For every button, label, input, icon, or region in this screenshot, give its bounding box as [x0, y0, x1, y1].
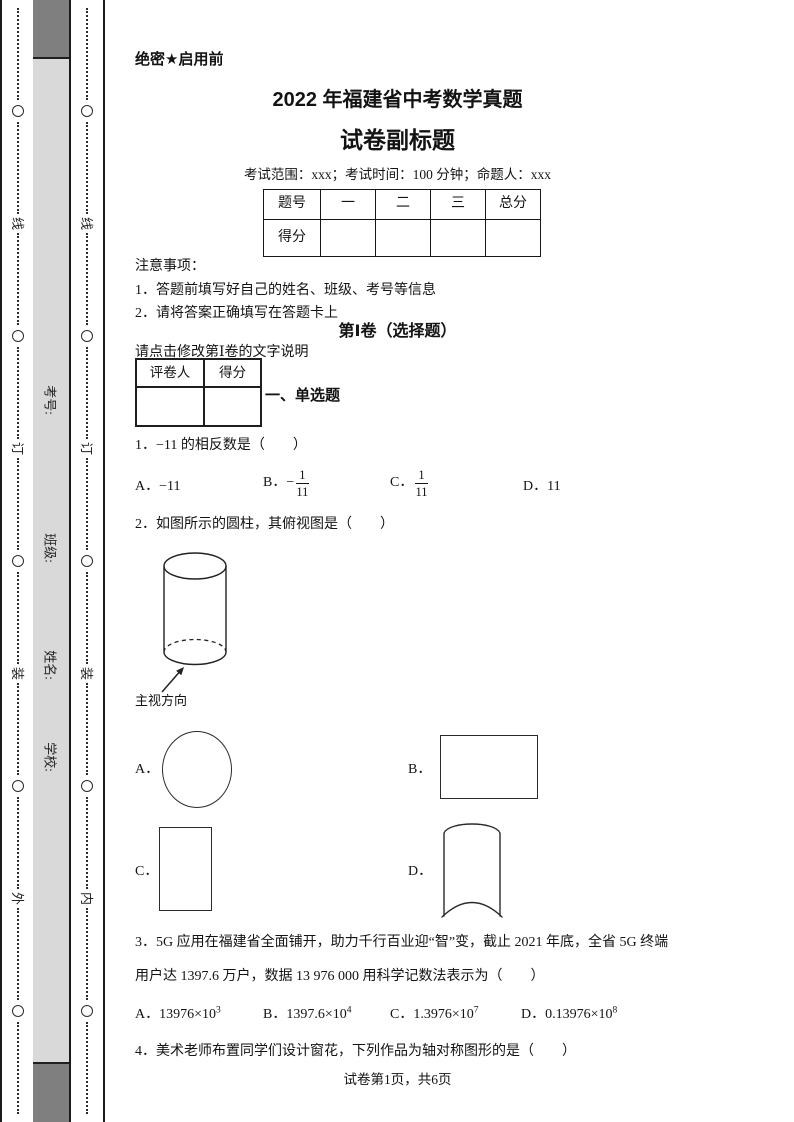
dotted-line-segment [86, 572, 88, 664]
q1-option-b: B．−111 [263, 468, 311, 500]
dotted-line-segment [17, 233, 19, 325]
punch-hole-circle-icon [81, 780, 93, 792]
fraction: 111 [415, 468, 427, 500]
dotted-line-segment [86, 908, 88, 1000]
dotted-line-segment [86, 458, 88, 550]
score-row-label: 得分 [264, 220, 321, 257]
score-table-header: 三 [431, 190, 486, 220]
dotted-line-segment [17, 347, 19, 439]
punch-hole-circle-icon [12, 555, 24, 567]
punch-hole-circle-icon [12, 330, 24, 342]
strip-bottom-cap [33, 1062, 69, 1122]
exponent: 4 [347, 1005, 352, 1015]
exam-paper-page: { "page": { "secret_label": "绝密★启用前", "t… [0, 0, 794, 1122]
binding-line-outer-column: 线 订 装 外 [0, 0, 33, 1122]
grader-empty-cell [204, 387, 261, 426]
binding-char: 装 [11, 667, 24, 680]
q2-option-c-label: C． [135, 863, 158, 882]
exam-number-field-label: 考号: [42, 385, 61, 415]
punch-hole-circle-icon [12, 1005, 24, 1017]
q2-option-b-rectangle-figure [440, 735, 538, 799]
subsection-heading: 一、单选题 [265, 386, 340, 406]
binding-char: 订 [11, 442, 24, 455]
dotted-line-segment [86, 347, 88, 439]
score-empty-cell [431, 220, 486, 257]
q2-option-c-rectangle-figure [159, 827, 212, 911]
dotted-line-segment [17, 458, 19, 550]
score-summary-table: 题号 一 二 三 总分 得分 [263, 189, 541, 257]
score-empty-cell [321, 220, 376, 257]
q1-option-d: D．11 [523, 478, 561, 497]
binding-char: 外 [11, 892, 24, 905]
question-3-stem-line1: 3．5G 应用在福建省全面铺开，助力千行百业迎“智”变，截止 2021 年底，全… [135, 934, 668, 953]
student-info-strip: 考号: 班级: 姓名: 学校: [33, 0, 71, 1122]
dotted-line-segment [17, 797, 19, 889]
punch-hole-circle-icon [81, 330, 93, 342]
binding-char: 订 [80, 442, 93, 455]
page-footer: 试卷第1页，共6页 [135, 1071, 660, 1089]
secret-label: 绝密★启用前 [135, 50, 223, 70]
dotted-line-segment [17, 122, 19, 214]
q2-option-d-label: D． [408, 863, 432, 882]
binding-line-inner-column: 线 订 装 内 [71, 0, 105, 1122]
figure-label: 主视方向 [135, 692, 187, 710]
exponent: 7 [474, 1005, 479, 1015]
dotted-line-segment [86, 8, 88, 100]
q2-option-a-circle-figure [162, 731, 232, 808]
q3-option-b: B．1397.6×104 [263, 1006, 352, 1025]
q2-option-b-label: B． [408, 761, 431, 780]
binding-margin: 线 订 装 外 考号: 班级: 姓名: 学校: 线 订 装 [0, 0, 107, 1122]
name-field-label: 姓名: [42, 650, 61, 680]
question-1-stem: 1．−11 的相反数是（ ） [135, 437, 307, 456]
class-field-label: 班级: [42, 533, 61, 563]
binding-char: 装 [80, 667, 93, 680]
exponent: 3 [216, 1005, 221, 1015]
q2-option-a-label: A． [135, 761, 159, 780]
q1-option-a: A．−11 [135, 478, 181, 497]
section1-heading: 第Ⅰ卷（选择题） [135, 321, 660, 343]
dotted-line-segment [86, 122, 88, 214]
punch-hole-circle-icon [81, 1005, 93, 1017]
grader-score-table: 评卷人 得分 [135, 358, 262, 427]
notes-item-1: 1．答题前填写好自己的姓名、班级、考号等信息 [135, 282, 436, 301]
question-2-stem: 2．如图所示的圆柱，其俯视图是（ ） [135, 516, 394, 535]
binding-char: 线 [80, 217, 93, 230]
question-4-stem: 4．美术老师布置同学们设计窗花，下列作品为轴对称图形的是（ ） [135, 1043, 576, 1062]
dotted-line-segment [17, 8, 19, 100]
q3-option-a: A．13976×103 [135, 1006, 221, 1025]
dotted-line-segment [17, 683, 19, 775]
school-field-label: 学校: [42, 742, 61, 772]
score-empty-cell [376, 220, 431, 257]
cylinder-figure [143, 551, 263, 701]
grader-header: 评卷人 [136, 359, 204, 387]
q3-option-c: C．1.3976×107 [390, 1006, 479, 1025]
q2-option-d-curved-figure [441, 820, 503, 920]
exam-content: 绝密★启用前 2022 年福建省中考数学真题 试卷副标题 考试范围：xxx；考试… [135, 0, 660, 1122]
page-title: 2022 年福建省中考数学真题 [135, 87, 660, 114]
score-empty-cell [486, 220, 541, 257]
exam-info-line: 考试范围：xxx；考试时间：100 分钟；命题人：xxx [135, 166, 660, 184]
dotted-line-segment [86, 233, 88, 325]
dotted-line-segment [17, 908, 19, 1000]
q1-option-c: C．111 [390, 468, 430, 500]
question-3-options: A．13976×103 B．1397.6×104 C．1.3976×107 D．… [135, 1006, 660, 1030]
dotted-line-segment [17, 572, 19, 664]
score-table-header: 二 [376, 190, 431, 220]
score-table-header: 一 [321, 190, 376, 220]
exponent: 8 [613, 1005, 618, 1015]
notes-heading: 注意事项： [135, 258, 205, 277]
fraction: 111 [296, 468, 308, 500]
punch-hole-circle-icon [81, 105, 93, 117]
dotted-line-segment [86, 683, 88, 775]
dotted-line-segment [86, 1022, 88, 1114]
q3-option-d: D．0.13976×108 [521, 1006, 617, 1025]
strip-top-cap [33, 0, 69, 59]
punch-hole-circle-icon [81, 555, 93, 567]
grader-score-header: 得分 [204, 359, 261, 387]
punch-hole-circle-icon [12, 105, 24, 117]
binding-char: 内 [80, 892, 93, 905]
binding-char: 线 [11, 217, 24, 230]
punch-hole-circle-icon [12, 780, 24, 792]
question-1-options: A．−11 B．−111 C．111 D．11 [135, 468, 660, 508]
dotted-line-segment [86, 797, 88, 889]
score-table-header: 总分 [486, 190, 541, 220]
dotted-line-segment [17, 1022, 19, 1114]
grader-empty-cell [136, 387, 204, 426]
score-table-header: 题号 [264, 190, 321, 220]
question-3-stem-line2: 用户达 1397.6 万户，数据 13 976 000 用科学记数法表示为（ ） [135, 968, 545, 987]
page-subtitle: 试卷副标题 [135, 125, 660, 156]
